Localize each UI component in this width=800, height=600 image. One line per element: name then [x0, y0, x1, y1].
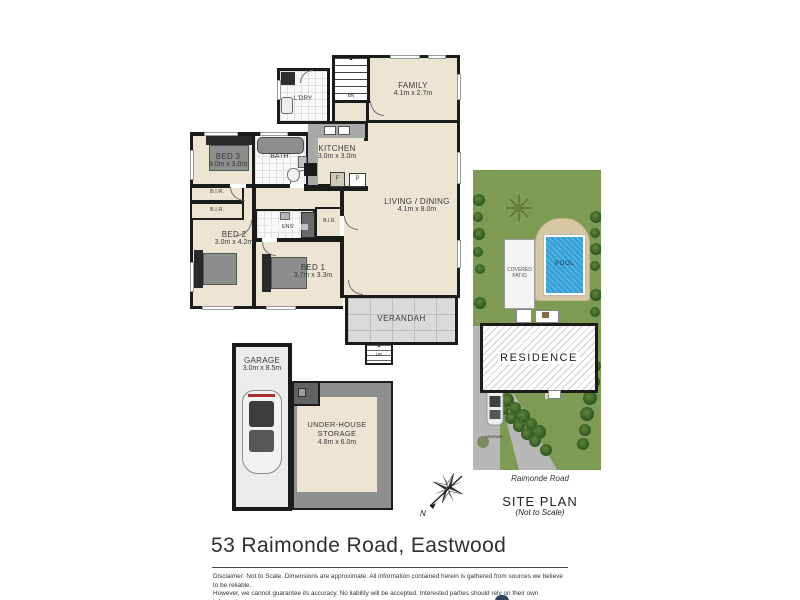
title-divider: [212, 567, 568, 568]
steps-up-label: UP: [365, 352, 393, 357]
kitchen-dims: 3.0m x 3.0m: [307, 153, 367, 161]
bed2-dims: 3.0m x 4.2m: [204, 239, 264, 247]
family-name: FAMILY: [368, 81, 458, 90]
laundry-label: L'DRY: [280, 95, 326, 103]
family-dims: 4.1m x 2.7m: [368, 90, 458, 98]
window: [390, 55, 420, 59]
kitchen-sink-icon: [324, 126, 336, 135]
car-icon-driveway: [487, 388, 503, 425]
bed3-dims: 3.0m x 3.0m: [195, 161, 261, 169]
ensuite-label: ENS': [268, 224, 308, 230]
disclaimer: Disclaimer: Not to Scale. Dimensions are…: [213, 573, 569, 600]
living-dining-dims: 4.1m x 8.0m: [357, 206, 477, 214]
vanity-icon: [280, 212, 290, 220]
garage-name: GARAGE: [228, 356, 296, 365]
kitchen-label: KITCHEN 3.0m x 3.0m: [307, 144, 367, 162]
entry-porch: [535, 310, 559, 323]
stairs-down-arrow-icon: ▲: [344, 57, 358, 63]
bed1-name: BED 1: [283, 263, 343, 272]
garage-label: GARAGE 3.0m x 8.5m: [228, 356, 296, 374]
pantry-label: P: [355, 176, 359, 183]
bir2-label: B.I.R.: [190, 207, 244, 213]
stairs-down-label: DN: [332, 93, 370, 98]
bir1-label: B.I.R.: [190, 189, 244, 195]
compass-icon: N: [416, 468, 472, 520]
bed1-label: BED 1 3.7m x 3.3m: [283, 263, 343, 281]
family-label: FAMILY 4.1m x 2.7m: [368, 81, 458, 99]
disclaimer-line-2: However, we cannot guarantee its accurac…: [213, 590, 569, 600]
washer-icon: [281, 72, 295, 85]
fridge-label: F: [336, 176, 340, 183]
storage-entry-cell: [294, 383, 320, 406]
residence: RESIDENCE: [480, 323, 598, 393]
site-plan-subtitle: (Not to Scale): [485, 508, 595, 517]
patio-label-2: PATIO: [512, 274, 526, 280]
road-label: Raimonde Road: [490, 474, 590, 483]
car-rear-window: [249, 401, 274, 427]
floorplan-page: ▲ F P: [0, 0, 800, 600]
storage-name-2: STORAGE: [299, 430, 375, 439]
living-dining-name: LIVING / DINING: [357, 197, 477, 206]
kitchen-name: KITCHEN: [307, 144, 367, 153]
pantry-box: P: [349, 173, 366, 187]
door-gap: [290, 184, 304, 188]
compass-north-label: N: [420, 509, 426, 518]
fridge-box: F: [330, 172, 345, 187]
agency-logo: [495, 595, 509, 600]
stove-icon: [304, 163, 317, 176]
bed3-name: BED 3: [195, 152, 261, 161]
window: [457, 152, 461, 184]
car-taillight: [248, 394, 275, 397]
disclaimer-line-1: Disclaimer: Not to Scale. Dimensions are…: [213, 573, 569, 590]
kitchen-bench-top: [308, 124, 365, 138]
window: [457, 240, 461, 268]
bath-name: BATH': [257, 153, 303, 161]
bed2-name: BED 2: [204, 230, 264, 239]
bed-icon-bed2-head: [194, 250, 203, 288]
page-title: 53 Raimonde Road, Eastwood: [211, 534, 611, 559]
toilet-icon: [287, 168, 300, 182]
bed-icon-bed1-head: [262, 254, 271, 292]
pool-label: POOL: [555, 261, 574, 268]
patio-connector: [516, 309, 532, 323]
garage-dims: 3.0m x 8.5m: [228, 365, 296, 373]
bath-label: BATH': [257, 153, 303, 161]
kitchen-sink-icon: [338, 126, 350, 135]
residence-label: RESIDENCE: [498, 352, 580, 365]
bir3-label: B.I.R.: [315, 219, 344, 225]
laundry-name: L'DRY: [280, 95, 326, 103]
steps-up-arrow-icon: ▲: [374, 344, 384, 349]
storage-label: UNDER-HOUSE STORAGE 4.8m x 6.0m: [299, 421, 375, 447]
wall: [340, 191, 344, 298]
residence-rear-step: [548, 390, 561, 399]
driveway-label: DRIVEWAY: [485, 435, 503, 439]
bathtub-icon: [257, 137, 304, 154]
porch-step-icon: [542, 312, 549, 318]
bed2-label: BED 2 3.0m x 4.2m: [204, 230, 264, 248]
car-icon-garage: [242, 390, 282, 474]
bed-icon-bed2: [203, 253, 237, 285]
storage-entry-icon: [298, 388, 306, 397]
living-dining-label: LIVING / DINING 4.1m x 8.0m: [357, 197, 477, 215]
car-front-window: [249, 430, 274, 452]
storage-dims: 4.8m x 6.0m: [299, 439, 375, 447]
pool: POOL: [546, 237, 583, 293]
window: [190, 150, 194, 180]
window: [260, 132, 288, 136]
bed-icon-bed3-head: [206, 136, 252, 145]
bed1-dims: 3.7m x 3.3m: [283, 272, 343, 280]
verandah-label: VERANDAH: [345, 314, 458, 323]
window: [266, 306, 296, 310]
window: [428, 55, 446, 59]
window: [202, 306, 234, 310]
covered-patio: COVERED PATIO: [504, 239, 535, 309]
bed3-label: BED 3 3.0m x 3.0m: [195, 152, 261, 170]
